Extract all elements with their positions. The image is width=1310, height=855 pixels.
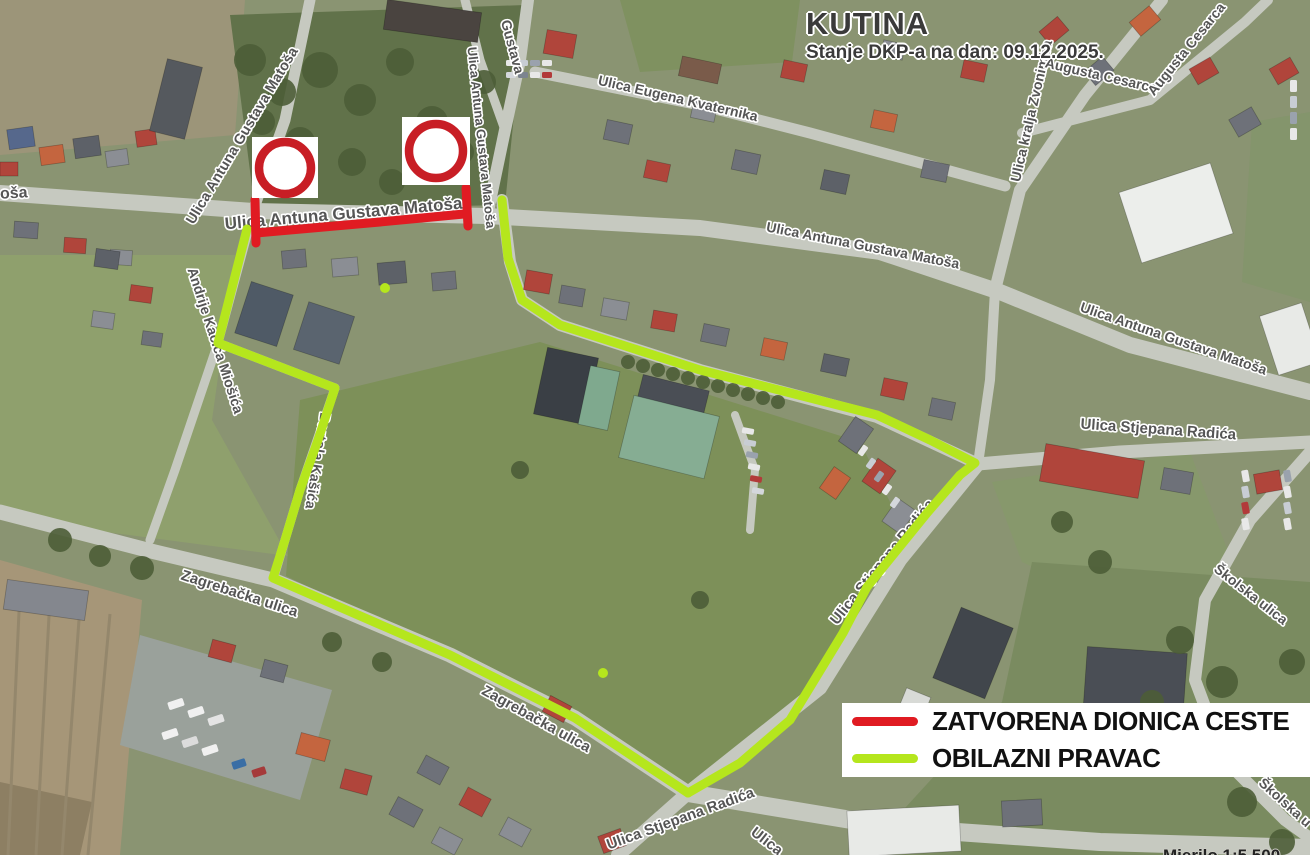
street-label: oša <box>0 184 28 202</box>
building <box>1253 470 1282 494</box>
tree <box>691 591 709 609</box>
tree <box>511 461 529 479</box>
tree <box>771 395 785 409</box>
legend: ZATVORENA DIONICA CESTE OBILAZNI PRAVAC <box>842 703 1310 777</box>
tree <box>621 355 635 369</box>
building <box>651 310 678 332</box>
building <box>73 135 102 158</box>
tree <box>1279 649 1305 675</box>
building <box>105 149 129 168</box>
tree <box>1206 666 1238 698</box>
building <box>13 221 38 239</box>
tree <box>636 359 650 373</box>
building <box>281 249 306 269</box>
building <box>377 261 407 285</box>
no-entry-ring-icon <box>259 142 311 194</box>
detour-route-swatch <box>852 754 918 763</box>
parked-vehicle <box>542 60 552 66</box>
tree <box>741 387 755 401</box>
tree <box>372 652 392 672</box>
terrain-patch <box>620 0 800 72</box>
tree <box>1227 787 1257 817</box>
closed-route-endcap <box>255 200 256 243</box>
building <box>1001 799 1042 827</box>
tree <box>386 48 414 76</box>
building <box>64 237 87 253</box>
building <box>559 285 586 307</box>
building <box>331 257 358 277</box>
building <box>431 271 456 291</box>
tree <box>234 44 266 76</box>
tree <box>130 556 154 580</box>
tree <box>322 632 342 652</box>
tree <box>379 169 405 195</box>
building <box>39 144 65 165</box>
no-entry-ring-icon <box>409 124 463 178</box>
legend-item-detour: OBILAZNI PRAVAC <box>852 743 1310 774</box>
closed-route-swatch <box>852 717 918 726</box>
tree <box>344 84 376 116</box>
parked-vehicle <box>1290 80 1297 92</box>
tree <box>1088 550 1112 574</box>
tree <box>666 367 680 381</box>
tree <box>681 371 695 385</box>
terrain-patch <box>0 0 245 155</box>
building <box>91 311 115 330</box>
building <box>543 30 577 59</box>
parked-vehicle <box>1290 96 1297 108</box>
closed-route-endcap <box>466 188 468 226</box>
tree <box>696 375 710 389</box>
tree <box>338 148 366 176</box>
building <box>847 805 961 855</box>
parked-vehicle <box>530 60 540 66</box>
tree <box>1051 511 1073 533</box>
no-entry-sign <box>402 117 470 185</box>
detour-dot <box>380 283 390 293</box>
detour-dot <box>598 668 608 678</box>
building <box>129 285 153 304</box>
tree <box>756 391 770 405</box>
tree <box>726 383 740 397</box>
parked-vehicle <box>1290 128 1297 140</box>
building <box>1160 468 1193 495</box>
building <box>94 248 120 269</box>
tree <box>48 528 72 552</box>
tree <box>651 363 665 377</box>
tree <box>302 52 338 88</box>
no-entry-sign <box>252 137 318 198</box>
map-viewport: ošaUlica Antuna Gustava MatošaUlica Antu… <box>0 0 1310 855</box>
legend-label-detour: OBILAZNI PRAVAC <box>932 743 1160 774</box>
building <box>141 331 163 348</box>
building <box>7 126 36 149</box>
building <box>0 162 18 176</box>
tree <box>89 545 111 567</box>
parked-vehicle <box>1290 112 1297 124</box>
tree <box>711 379 725 393</box>
legend-label-closed: ZATVORENA DIONICA CESTE <box>932 706 1289 737</box>
building <box>523 270 552 294</box>
legend-item-closed-section: ZATVORENA DIONICA CESTE <box>852 706 1310 737</box>
parked-vehicle <box>542 72 552 78</box>
tree <box>1166 626 1194 654</box>
terrain-patch <box>1242 112 1310 302</box>
scale-note: Mjerilo 1:5.500 <box>1163 846 1280 855</box>
parked-vehicle <box>530 72 540 78</box>
